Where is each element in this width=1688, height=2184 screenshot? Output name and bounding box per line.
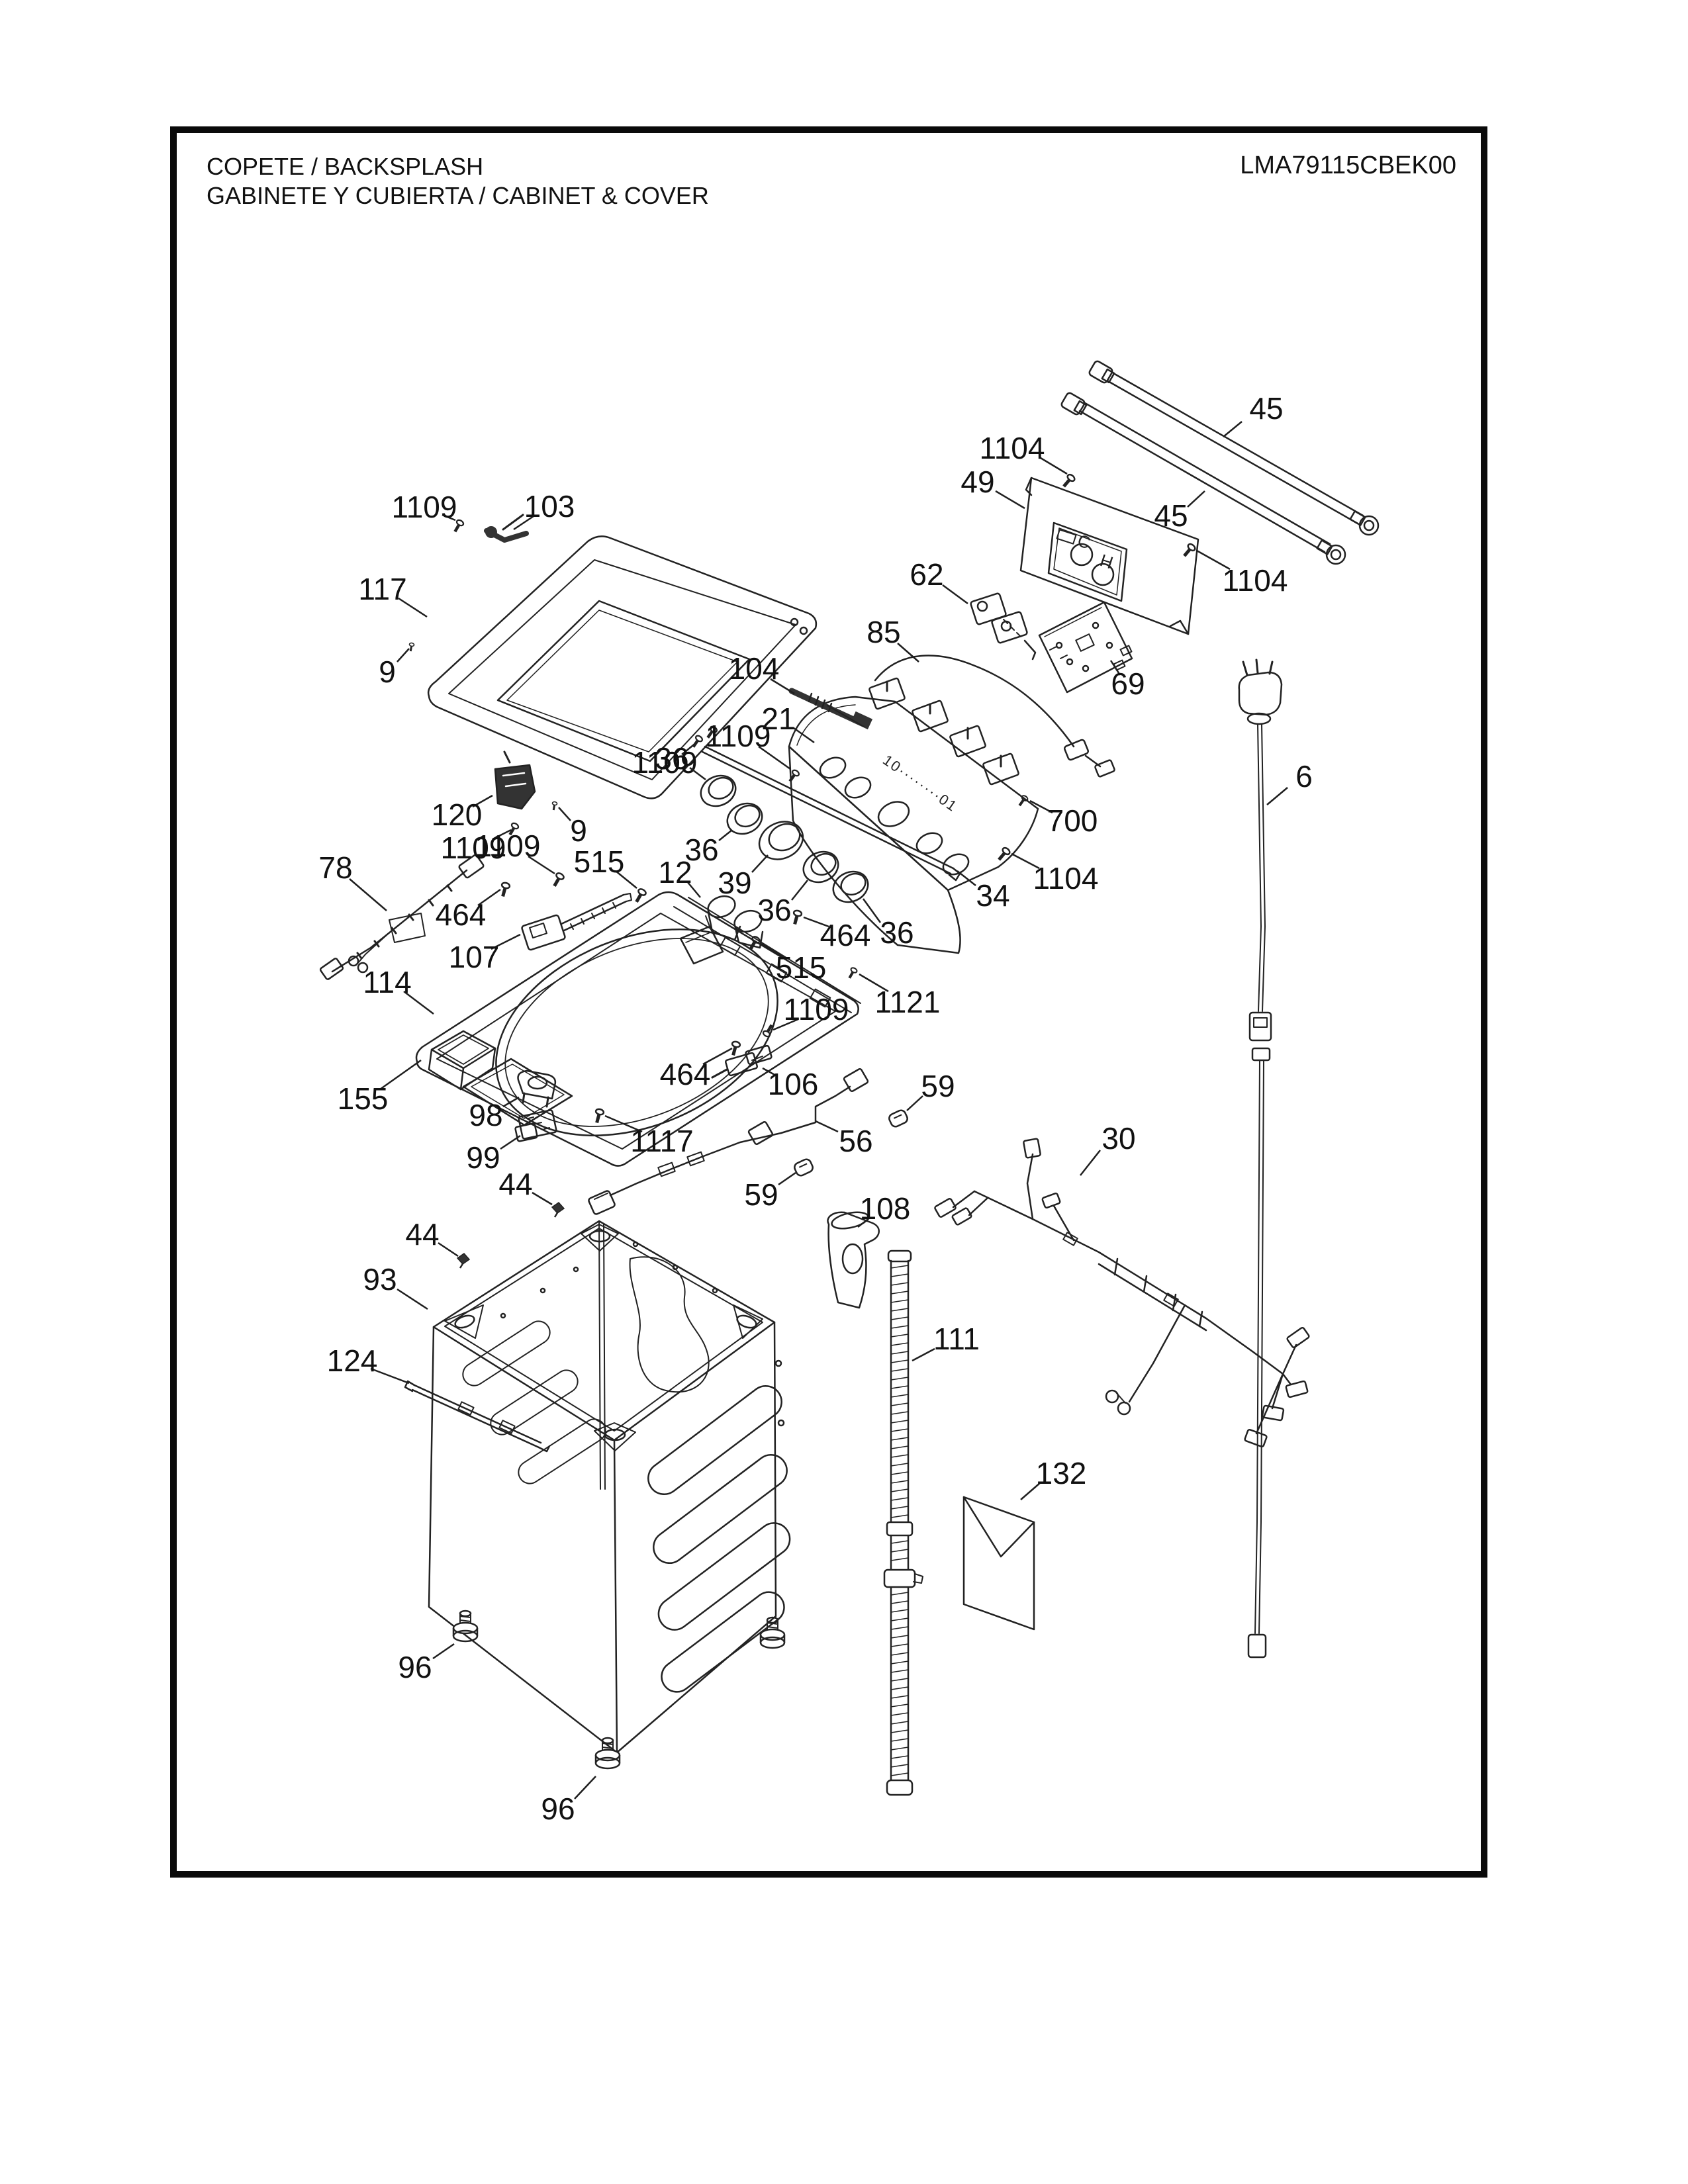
hose-rib (891, 1274, 908, 1277)
callout-label-1109: 1109 (706, 719, 771, 753)
callout-label-45: 45 (1154, 498, 1188, 533)
hose-rib (891, 1644, 908, 1647)
part-fill-hoses-45 (1060, 360, 1378, 564)
screw-icon (847, 967, 858, 979)
callout-label-103: 103 (524, 489, 575, 523)
callout-leader-line (1223, 422, 1242, 437)
callout-label-1109: 1109 (392, 490, 457, 524)
callout-leader-line (532, 1193, 552, 1205)
callout-label-1104: 1104 (980, 431, 1045, 465)
callout-label-1104: 1104 (1223, 563, 1288, 598)
callout-label-62: 62 (910, 557, 943, 592)
callout-label-104: 104 (729, 651, 780, 686)
panel-dial-scale: 10········01 (880, 752, 961, 815)
callout-label-45: 45 (1249, 391, 1283, 426)
callout-leader-line (1188, 491, 1205, 507)
screw-icon (791, 910, 802, 925)
hose-rib (891, 1343, 908, 1345)
page-title-line2: GABINETE Y CUBIERTA / CABINET & COVER (207, 182, 709, 209)
callout-leader-line (500, 1136, 520, 1149)
callout-label-515: 515 (574, 844, 625, 879)
screw-icon (1060, 473, 1076, 489)
hose-rib (891, 1326, 908, 1328)
callout-label-6: 6 (1295, 759, 1313, 794)
callout-leader-line (943, 585, 968, 604)
callout-label-700: 700 (1047, 803, 1098, 838)
callout-label-34: 34 (976, 878, 1009, 913)
hose-rib (891, 1291, 908, 1294)
callout-label-56: 56 (839, 1124, 872, 1158)
hose-rib (891, 1670, 908, 1672)
callout-leader-line (898, 643, 919, 662)
hose-rib (891, 1437, 908, 1440)
leveling-foot-icon (761, 1617, 784, 1648)
hose-rib (891, 1412, 908, 1414)
hose-rib (891, 1704, 908, 1707)
part-switch-assembly-62 (970, 593, 1035, 659)
callout-label-1109: 1109 (784, 992, 849, 1026)
callout-label-1117: 1117 (630, 1124, 694, 1158)
callout-label-1109: 1109 (475, 829, 541, 863)
hose-rib (891, 1713, 908, 1715)
clip-icon (457, 1253, 469, 1268)
hose-rib (891, 1403, 908, 1406)
hose-rib (891, 1480, 908, 1483)
screw-icon (551, 872, 565, 888)
hose-rib (891, 1386, 908, 1388)
screw-icon (787, 769, 800, 784)
hose-rib (891, 1721, 908, 1724)
hose-rib (891, 1283, 908, 1285)
callout-label-1121: 1121 (875, 985, 941, 1019)
callout-label-464: 464 (436, 897, 487, 932)
screw-icon (996, 846, 1011, 862)
parts-diagram-page: COPETE / BACKSPLASH GABINETE Y CUBIERTA … (0, 0, 1688, 2184)
callout-label-36: 36 (655, 741, 688, 776)
hose-rib (891, 1506, 908, 1509)
hose-rib (891, 1377, 908, 1380)
hose-rib (891, 1592, 908, 1595)
callout-label-464: 464 (820, 918, 871, 952)
hose-rib (891, 1549, 908, 1552)
part-cabinet-93 (429, 1221, 796, 1752)
callout-label-69: 69 (1111, 666, 1145, 701)
hose-rib (891, 1317, 908, 1320)
hose-rib (891, 1515, 908, 1518)
callout-leader-line (350, 879, 387, 911)
callout-leader-line (397, 1289, 428, 1309)
callout-leader-line (816, 1121, 838, 1132)
hose-rib (891, 1610, 908, 1612)
callout-label-124: 124 (327, 1343, 378, 1378)
callout-label-155: 155 (338, 1081, 389, 1116)
callout-label-9: 9 (570, 813, 587, 848)
callout-label-12: 12 (658, 855, 692, 889)
hose-rib (891, 1498, 908, 1500)
model-number: LMA79115CBEK00 (1240, 152, 1456, 179)
part-hinge-bracket-120 (495, 752, 535, 809)
callout-leader-line (907, 1096, 923, 1111)
hose-rib (891, 1463, 908, 1466)
screw-icon (551, 801, 557, 811)
part-main-harness-30 (934, 1138, 1309, 1447)
callout-leader-line (778, 1173, 796, 1185)
clip-icon (552, 1203, 564, 1217)
part-trim-strip-34 (702, 747, 960, 880)
screw-icon (1017, 795, 1028, 807)
hose-rib (891, 1455, 908, 1457)
hose-rib (891, 1369, 908, 1371)
callout-label-96: 96 (398, 1650, 432, 1684)
screw-icon (408, 643, 414, 652)
hose-rib (891, 1394, 908, 1397)
hose-rib (891, 1747, 908, 1750)
callout-label-111: 111 (933, 1322, 980, 1356)
hose-rib (891, 1558, 908, 1561)
callout-leader-line (433, 1644, 454, 1659)
callout-label-93: 93 (363, 1262, 397, 1297)
callout-label-44: 44 (405, 1217, 439, 1251)
exploded-view-diagram: COPETE / BACKSPLASH GABINETE Y CUBIERTA … (0, 0, 1688, 2184)
callout-label-117: 117 (358, 572, 406, 606)
hose-rib (891, 1739, 908, 1741)
screw-icon (499, 882, 510, 897)
callout-label-49: 49 (961, 465, 994, 499)
hose-rib (891, 1661, 908, 1664)
callout-label-36: 36 (757, 893, 791, 927)
hose-rib (891, 1472, 908, 1475)
callout-label-59: 59 (744, 1177, 778, 1212)
part-drain-hose-111 (884, 1251, 923, 1795)
hose-rib (891, 1678, 908, 1681)
hose-rib (891, 1334, 908, 1337)
part-power-cord-6 (1239, 660, 1282, 1657)
callout-label-120: 120 (432, 797, 483, 832)
part-literature-132 (964, 1497, 1034, 1629)
callout-leader-line (438, 1243, 458, 1256)
retainer-clip-icon (793, 1158, 814, 1177)
hose-rib (891, 1265, 908, 1268)
hose-rib (891, 1351, 908, 1354)
hose-rib (891, 1300, 908, 1302)
screw-icon (593, 1109, 604, 1124)
part-shipping-rod-124 (405, 1381, 549, 1451)
callout-leader-line (559, 807, 571, 821)
callout-label-59: 59 (921, 1069, 955, 1103)
callout-label-36: 36 (880, 915, 914, 950)
hose-rib (891, 1541, 908, 1543)
hose-rib (891, 1764, 908, 1767)
hose-rib (891, 1627, 908, 1629)
hose-rib (891, 1687, 908, 1690)
hose-rib (891, 1618, 908, 1621)
hose-rib (891, 1730, 908, 1733)
callout-label-1104: 1104 (1033, 861, 1099, 895)
screw-icon (1181, 543, 1196, 559)
callout-label-464: 464 (660, 1057, 711, 1091)
part-bumper-98 (518, 1071, 555, 1107)
hose-rib (891, 1446, 908, 1449)
callout-label-107: 107 (449, 940, 500, 974)
callout-label-106: 106 (768, 1067, 819, 1101)
diagram-artwork: C H (320, 360, 1378, 1795)
hose-rib (891, 1756, 908, 1758)
retainer-clip-icon (888, 1109, 909, 1128)
hose-rib (891, 1653, 908, 1655)
callout-label-99: 99 (466, 1140, 500, 1175)
callout-leader-line (996, 491, 1025, 508)
screw-icon (633, 888, 647, 904)
hose-rib (891, 1635, 908, 1638)
hose-rib (891, 1489, 908, 1492)
callout-label-44: 44 (498, 1167, 532, 1201)
callout-label-96: 96 (541, 1792, 575, 1826)
hose-rib (891, 1429, 908, 1432)
leveling-foot-icon (453, 1611, 477, 1641)
hose-rib (891, 1696, 908, 1698)
callout-leader-line (719, 830, 732, 841)
callout-label-114: 114 (363, 965, 411, 999)
callout-label-9: 9 (379, 655, 396, 689)
callout-leader-line (1267, 788, 1288, 805)
hose-rib (891, 1601, 908, 1604)
callout-label-98: 98 (469, 1098, 502, 1132)
callout-label-85: 85 (867, 615, 900, 649)
hose-rib (891, 1308, 908, 1311)
part-hinge-103 (485, 515, 526, 540)
callout-leader-line (1080, 1150, 1100, 1175)
callout-label-132: 132 (1036, 1456, 1087, 1490)
callout-label-39: 39 (718, 866, 751, 900)
callout-label-515: 515 (776, 950, 827, 985)
callout-label-30: 30 (1102, 1121, 1135, 1156)
callout-leader-line (397, 649, 409, 662)
callout-leader-line (912, 1349, 935, 1361)
leveling-foot-icon (596, 1738, 620, 1768)
callout-label-108: 108 (860, 1191, 911, 1226)
page-title-line1: COPETE / BACKSPLASH (207, 153, 483, 180)
hose-rib (891, 1773, 908, 1776)
callout-leader-line (575, 1776, 596, 1799)
callout-label-78: 78 (318, 850, 352, 885)
callout-leader-line (792, 880, 808, 900)
callout-leader-line (752, 855, 768, 872)
hose-rib (891, 1420, 908, 1423)
part-control-panel-21: 10········01 (789, 697, 1038, 953)
hose-rib (891, 1360, 908, 1363)
